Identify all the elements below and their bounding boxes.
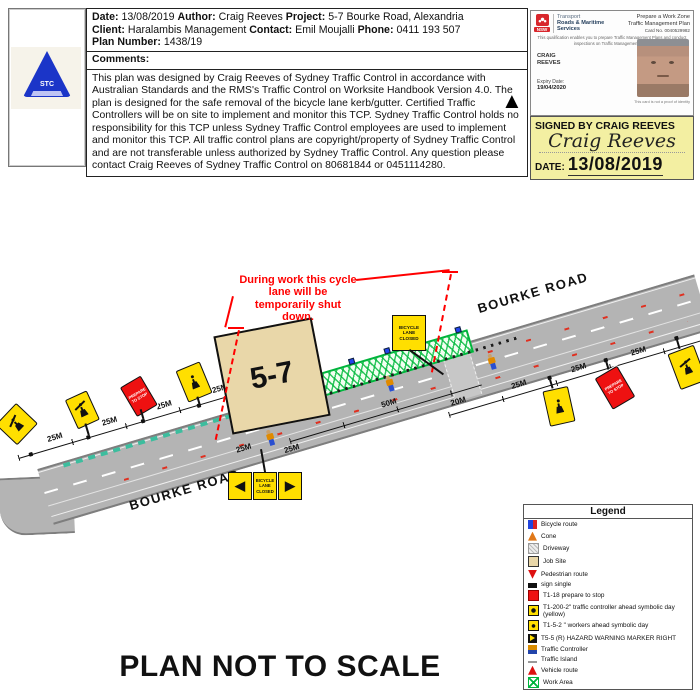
legend-label: Vehicle route: [541, 667, 578, 674]
t1-18-icon: [528, 590, 539, 601]
legend-row: Cone: [524, 530, 692, 541]
flag-icon: [9, 414, 16, 427]
signed-block: SIGNED BY CRAIG REEVES Craig Reeves DATE…: [530, 116, 694, 180]
legend-row: Pedestrian route: [524, 569, 692, 580]
hazard-marker-bicycle-closed-sign: ◀ BICYCLE LANE CLOSED ▶: [228, 472, 302, 500]
legend-row: Bicycle route: [524, 519, 692, 530]
annotation-tick-left: [228, 327, 244, 329]
worker-symbol-icon: [552, 398, 565, 415]
t1-5-2-icon: [528, 620, 539, 631]
annotation-line-left: [224, 296, 234, 328]
bicycle-lane-closed-panel: BICYCLE LANE CLOSED: [253, 472, 277, 500]
legend-row: Vehicle route: [524, 665, 692, 676]
legend-row: Work Area: [524, 676, 692, 689]
holder-first-name: CRAIG: [537, 53, 561, 61]
work-area-icon: [528, 677, 539, 688]
road-name-top: BOURKE ROAD: [476, 269, 590, 316]
comments-label: Comments:: [87, 54, 527, 69]
annotation-line-right: [356, 269, 450, 281]
signed-date-label: DATE:: [535, 162, 565, 173]
flag-icon: [679, 357, 690, 367]
card-holder-photo: [637, 39, 689, 97]
legend-row: T1-200-2" traffic controller ahead symbo…: [524, 603, 692, 619]
traffic-controller-icon: [528, 645, 537, 654]
phone-value: 0411 193 507: [396, 24, 460, 36]
card-top-row: NSW Transport Roads & Maritime Services …: [531, 11, 693, 34]
legend-label: Pedestrian route: [541, 571, 588, 578]
signature: Craig Reeves: [539, 132, 685, 153]
card-body: CRAIG REEVES Expiry Date: 19/04/2020 Thi…: [531, 47, 693, 105]
nsw-waratah-icon: [536, 14, 549, 26]
cone-icon: [528, 532, 537, 541]
date-label: Date:: [92, 11, 119, 23]
stc-logo-band: STC: [11, 47, 81, 109]
road-group: BOURKE ROAD BOURKE ROAD 25M 25M 25M 25M …: [35, 267, 700, 529]
card-title-line2: Traffic Management Plan: [618, 21, 690, 28]
prepare-to-stop-sign: PREPARE TO STOP: [120, 376, 158, 417]
legend-row: Traffic Island: [524, 655, 692, 664]
author-label: Author:: [177, 11, 215, 23]
plan-not-to-scale-title: PLAN NOT TO SCALE: [90, 650, 470, 684]
worker-symbol-icon: [187, 373, 202, 391]
vehicle-route-icon: [528, 666, 537, 675]
card-number: Card No. 0040529982: [618, 28, 690, 33]
legend-label: Traffic Island: [541, 656, 577, 663]
legend-box: Legend Bicycle route Cone Driveway Job S…: [523, 504, 693, 690]
legend-label: T5-5 (R) HAZARD WARNING MARKER RIGHT: [541, 635, 676, 642]
traffic-controller-ahead-sign: [667, 345, 700, 390]
agency-services: Services: [557, 26, 615, 32]
client-value: Haralambis Management: [128, 24, 246, 36]
legend-row: Driveway: [524, 542, 692, 555]
date-value: 13/08/2019: [121, 11, 174, 23]
flag-icon: [74, 400, 84, 410]
legend-label: Work Area: [543, 679, 573, 686]
controller-symbol-icon: [8, 415, 26, 433]
comments-section: Comments: This plan was designed by Crai…: [87, 52, 527, 176]
job-site-icon: [528, 556, 539, 567]
sign-single-icon: [528, 583, 537, 588]
job-site-building: 5-7: [213, 317, 330, 434]
driveway-icon: [528, 543, 539, 554]
bicycle-lane-closed-sign: BICYCLE LANE CLOSED: [392, 315, 426, 351]
client-label: Client:: [92, 24, 125, 36]
controller-symbol-icon: [680, 359, 695, 377]
stc-triangle-logo-icon: STC: [23, 51, 71, 97]
card-title-line1: Prepare a Work Zone: [618, 14, 690, 21]
plan-number-label: Plan Number:: [92, 36, 161, 48]
legend-label: Cone: [541, 533, 556, 540]
traffic-controller-ahead-sign: [65, 390, 100, 429]
t5-5-icon: [528, 634, 537, 643]
legend-label: Bicycle route: [541, 521, 578, 528]
project-label: Project:: [286, 11, 325, 23]
author-value: Craig Reeves: [219, 11, 283, 23]
bicycle-route-icon: [528, 520, 537, 529]
traffic-controller-ahead-sign: [0, 403, 38, 445]
project-value: 5-7 Bourke Road, Alexandria: [328, 11, 463, 23]
legend-title: Legend: [524, 505, 692, 519]
card-title-block: Prepare a Work Zone Traffic Management P…: [618, 14, 690, 33]
holder-last-name: REEVES: [537, 60, 561, 68]
legend-row: T1-18 prepare to stop: [524, 589, 692, 602]
cycle-lane-annotation: During work this cycle lane will be temp…: [238, 274, 358, 323]
card-holder-name: CRAIG REEVES: [537, 53, 561, 68]
plan-number-value: 1438/19: [164, 36, 202, 48]
plan-info-lines: Date: 13/08/2019 Author: Craig Reeves Pr…: [87, 9, 527, 52]
pedestrian-route-icon: [528, 570, 537, 579]
stc-triangle-inner: [31, 61, 63, 96]
card-expiry: Expiry Date: 19/04/2020: [537, 79, 566, 91]
traffic-island-icon: [528, 661, 537, 663]
legend-label: Job Site: [543, 558, 566, 565]
contact-value: Emil Moujalli: [295, 24, 354, 36]
traffic-plan-page: STC Date: 13/08/2019 Author: Craig Reeve…: [0, 0, 700, 700]
legend-row: Traffic Controller: [524, 644, 692, 655]
legend-label: T1-200-2" traffic controller ahead symbo…: [543, 604, 688, 618]
nsw-logo-text: NSW: [534, 27, 550, 32]
phone-label: Phone:: [358, 24, 394, 36]
rms-qualification-card: NSW Transport Roads & Maritime Services …: [530, 10, 694, 116]
comments-text: This plan was designed by Craig Reeves o…: [92, 73, 519, 171]
stc-logo-box: STC: [8, 8, 86, 167]
stc-logo-text: STC: [23, 81, 71, 88]
hazard-chevron-right-icon: ▶: [278, 472, 302, 500]
legend-row: T1-5-2 " workers ahead symbolic day: [524, 619, 692, 632]
legend-label: T1-5-2 " workers ahead symbolic day: [543, 622, 648, 629]
contact-label: Contact:: [249, 24, 292, 36]
north-arrow-icon: ▲: [501, 88, 523, 114]
signed-date-row: DATE: 13/08/2019: [531, 153, 693, 177]
card-footnote: This card is not a proof of identity: [634, 100, 690, 104]
agency-name: Transport Roads & Maritime Services: [553, 14, 615, 33]
legend-row: T5-5 (R) HAZARD WARNING MARKER RIGHT: [524, 632, 692, 643]
nsw-government-logo-icon: NSW: [534, 14, 550, 33]
workers-ahead-sign: [176, 361, 213, 402]
legend-label: T1-18 prepare to stop: [543, 592, 604, 599]
plan-header-box: Date: 13/08/2019 Author: Craig Reeves Pr…: [86, 8, 528, 177]
legend-row: Job Site: [524, 555, 692, 568]
legend-label: Traffic Controller: [541, 646, 588, 653]
expiry-value: 19/04/2020: [537, 85, 566, 91]
sign-single-dot: [196, 403, 201, 408]
legend-label: Driveway: [543, 545, 569, 552]
legend-row: sign single: [524, 580, 692, 589]
hazard-chevron-left-icon: ◀: [228, 472, 252, 500]
signed-date-value: 13/08/2019: [568, 154, 663, 176]
legend-label: sign single: [541, 581, 571, 588]
workers-ahead-sign: [542, 386, 575, 427]
annotation-tick-right: [442, 271, 458, 273]
card-number-value: 0040529982: [664, 28, 690, 33]
controller-symbol-icon: [75, 401, 90, 419]
t1-200-2-icon: [528, 605, 539, 616]
card-number-label: Card No.: [645, 28, 663, 33]
